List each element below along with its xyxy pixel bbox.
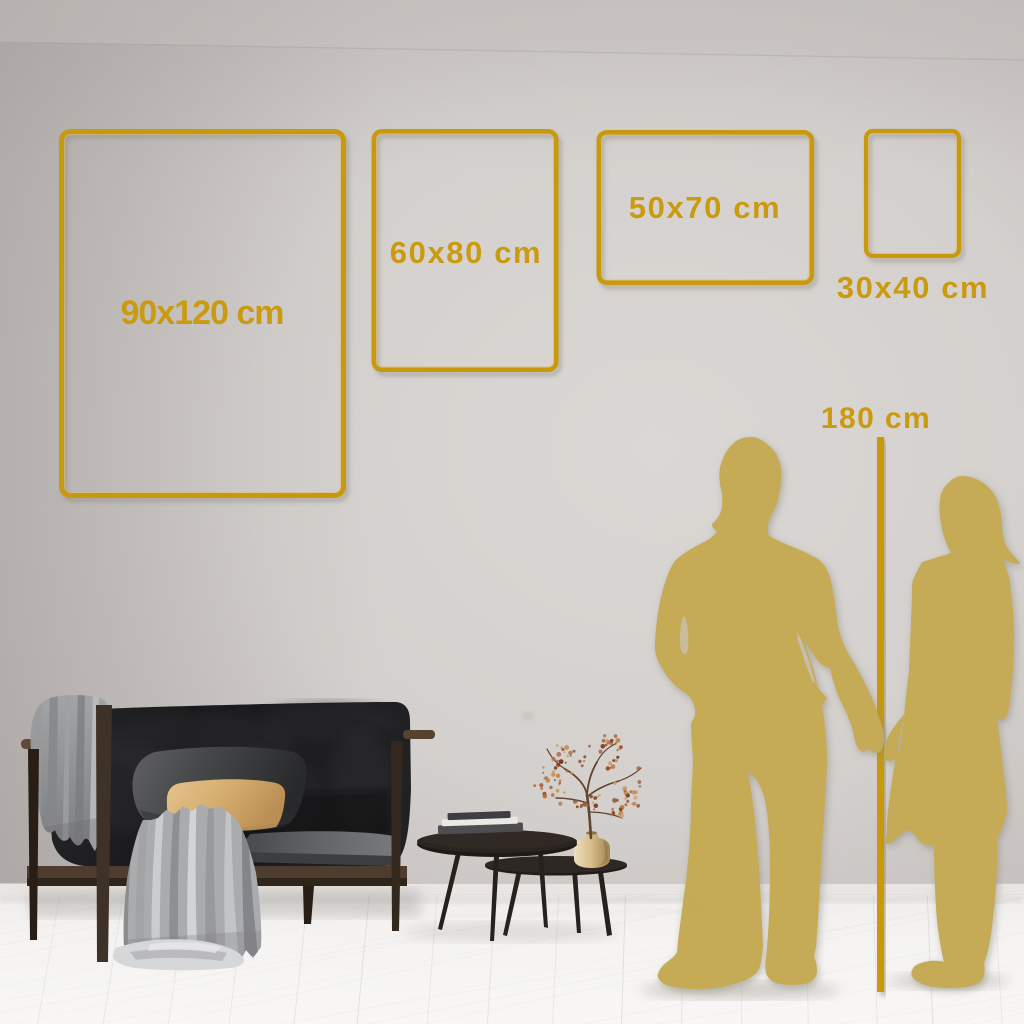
svg-text:180 cm: 180 cm <box>821 402 931 435</box>
svg-text:90x120 cm: 90x120 cm <box>120 294 283 332</box>
svg-text:30x40 cm: 30x40 cm <box>837 270 989 305</box>
svg-text:60x80 cm: 60x80 cm <box>390 235 542 270</box>
svg-text:50x70 cm: 50x70 cm <box>629 190 781 225</box>
